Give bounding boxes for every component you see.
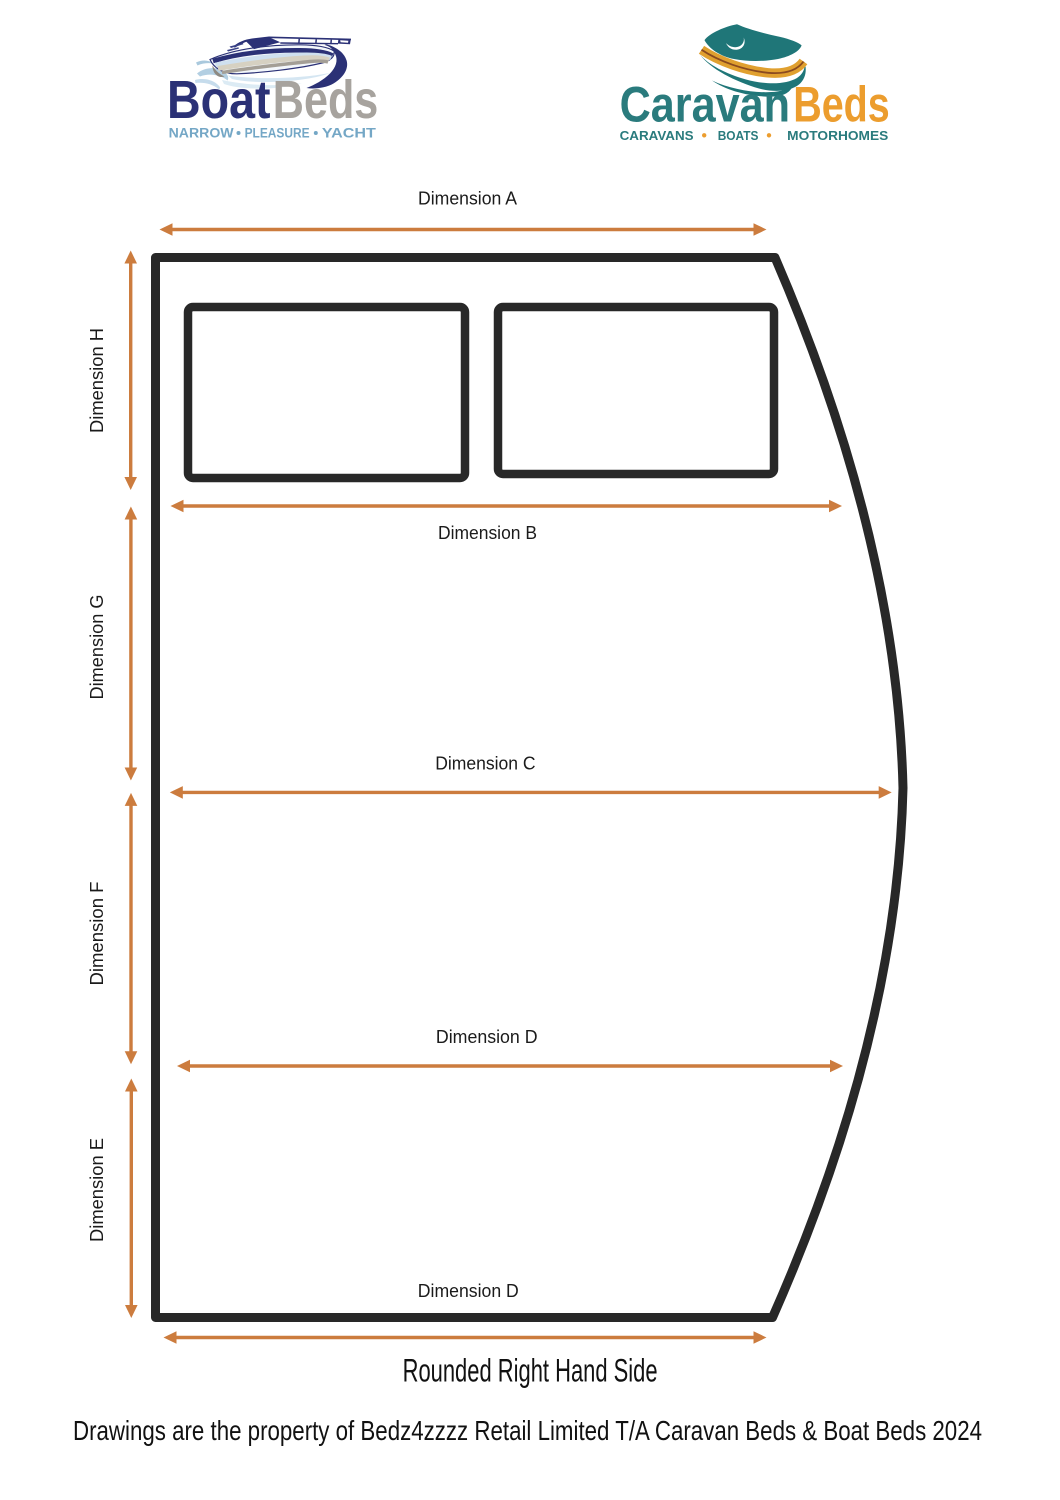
svg-text:Dimension E: Dimension E bbox=[86, 1138, 107, 1242]
svg-text:Dimension B: Dimension B bbox=[438, 522, 537, 543]
svg-text:PLEASURE: PLEASURE bbox=[245, 126, 310, 141]
svg-text:Dimension D: Dimension D bbox=[418, 1280, 519, 1301]
svg-text:Dimension D: Dimension D bbox=[436, 1026, 538, 1047]
svg-text:CARAVANS: CARAVANS bbox=[620, 128, 694, 143]
svg-text:Drawings are the property of B: Drawings are the property of Bedz4zzzz R… bbox=[73, 1415, 982, 1446]
svg-text:NARROW: NARROW bbox=[169, 126, 234, 141]
svg-text:Dimension A: Dimension A bbox=[418, 188, 518, 209]
svg-text:Dimension F: Dimension F bbox=[86, 882, 107, 986]
svg-text:Beds: Beds bbox=[793, 76, 890, 133]
svg-text:Dimension G: Dimension G bbox=[86, 595, 107, 700]
svg-text:YACHT: YACHT bbox=[322, 126, 377, 141]
svg-text:BOATS: BOATS bbox=[718, 128, 759, 143]
svg-text:Dimension H: Dimension H bbox=[86, 328, 107, 433]
svg-text:MOTORHOMES: MOTORHOMES bbox=[787, 128, 888, 143]
svg-text:Caravan: Caravan bbox=[620, 76, 790, 133]
svg-text:Dimension C: Dimension C bbox=[435, 752, 535, 773]
svg-text:Boat: Boat bbox=[167, 71, 271, 130]
svg-text:Rounded Right Hand Side: Rounded Right Hand Side bbox=[403, 1352, 658, 1389]
svg-text:Beds: Beds bbox=[273, 71, 379, 130]
